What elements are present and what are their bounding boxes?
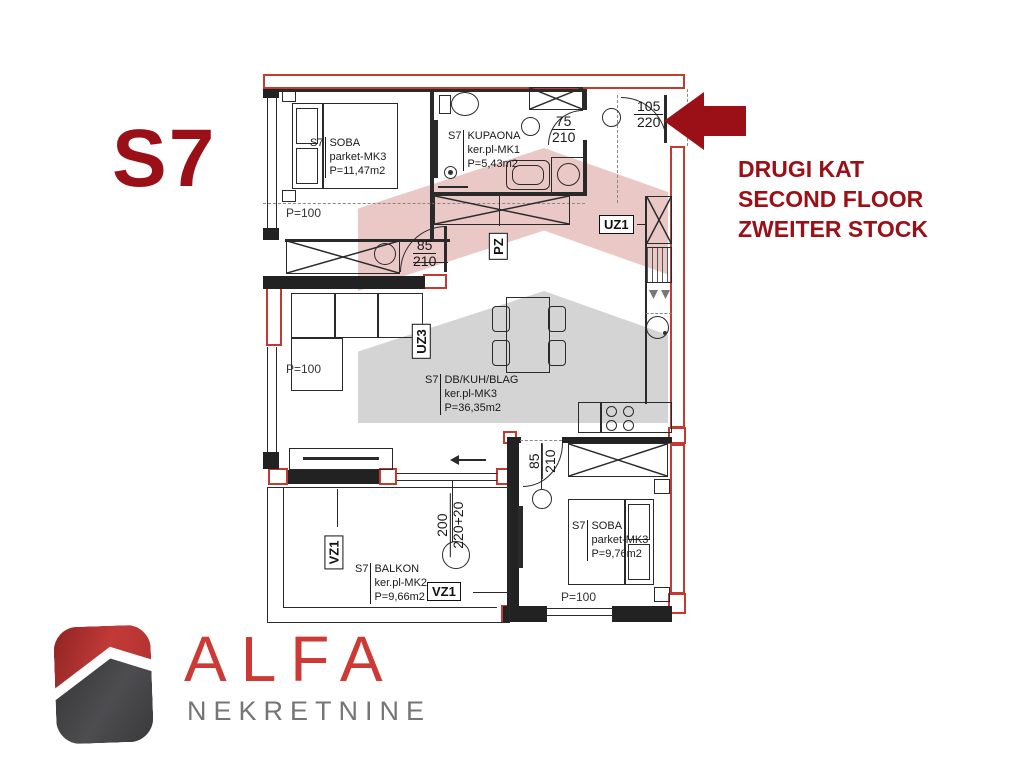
tv-living <box>303 457 379 460</box>
logo-title: ALFA <box>184 622 397 696</box>
burner <box>623 420 634 431</box>
nightstand <box>654 587 670 602</box>
wardrobe-bedroom1 <box>286 240 400 274</box>
room-prefix: S7 <box>448 130 463 171</box>
window-bedroom2 <box>547 608 613 616</box>
room-prefix: S7 <box>310 137 325 178</box>
bedroom1-door-leaf <box>444 226 447 272</box>
tv-bedroom2 <box>518 506 523 568</box>
parapet-bedroom1: P=100 <box>286 206 321 220</box>
dim-height: 210 <box>543 443 558 479</box>
room-label-bedroom2: S7 SOBAparket-MK3P=9,76m2 <box>572 520 648 561</box>
lamp-bedroom2 <box>532 489 552 509</box>
sofa-cushion-line <box>334 293 336 338</box>
room-floor: ker.pl-MK3 <box>444 388 518 402</box>
dim-height: 220 <box>634 115 663 130</box>
zone-label-uz1: UZ1 <box>599 215 634 234</box>
window-bedroom1 <box>267 97 277 232</box>
chair <box>492 340 510 366</box>
floorplan-canvas: S7 DRUGI KAT SECOND FLOOR ZWEITER STOCK <box>0 0 1034 768</box>
chair <box>492 306 510 332</box>
toilet-bowl <box>451 92 479 116</box>
window-living <box>267 347 277 452</box>
counter-divider <box>646 313 672 314</box>
dim-entrance-door: 105 220 <box>634 99 663 129</box>
unit-title: S7 <box>112 112 216 206</box>
room-label-bedroom1: S7 SOBAparket-MK3P=11,47m2 <box>310 137 386 178</box>
room-area: P=5,43m2 <box>467 158 520 172</box>
wall-stub <box>263 452 279 469</box>
counter-divider <box>600 402 602 433</box>
kitchen-sink-dot <box>663 331 667 335</box>
room-prefix: S7 <box>425 374 440 415</box>
closet-hall <box>434 195 570 225</box>
dim-width: 75 <box>552 114 575 130</box>
red-column <box>268 468 288 485</box>
room-prefix: S7 <box>572 520 587 561</box>
nightstand <box>282 190 296 202</box>
door-slide-arrow-head <box>450 455 459 465</box>
dim-height: 220+20 <box>451 493 466 557</box>
room-floor: ker.pl-MK2 <box>374 577 427 591</box>
leader-line <box>499 196 500 226</box>
bedroom2-door-opening <box>520 440 562 441</box>
room-floor: parket-MK3 <box>329 151 386 165</box>
glass-icon <box>661 290 670 299</box>
logo-subtitle: NEKRETNINE <box>187 696 431 727</box>
floor-info-line-de: ZWEITER STOCK <box>738 214 928 244</box>
room-floor: ker.pl-MK1 <box>467 144 520 158</box>
glass-icon <box>649 290 658 299</box>
kitchen-sink <box>646 316 669 339</box>
zone-label-vz1-wall: VZ1 <box>324 536 343 570</box>
zone-label-uz3: UZ3 <box>412 324 431 359</box>
balcony-inner-line-v <box>283 487 284 608</box>
room-area: P=9,66m2 <box>374 591 427 605</box>
room-name: SOBA <box>329 137 386 151</box>
leader-line <box>337 489 338 527</box>
dim-bedroom2-door: 85 210 <box>527 443 557 479</box>
entrance-arrow-icon <box>664 92 704 150</box>
dim-width: 85 <box>527 443 543 479</box>
window-balcony-door <box>397 473 497 481</box>
room-prefix: S7 <box>355 563 370 604</box>
room-label-balcony: S7 BALKONker.pl-MK2P=9,66m2 <box>355 563 427 604</box>
dim-bedroom1-door: 85 210 <box>413 238 436 268</box>
wardrobe-bathroom <box>529 87 583 110</box>
room-floor: parket-MK3 <box>591 534 648 548</box>
zone-label-vz1-floor: VZ1 <box>427 582 461 601</box>
room-name: KUPAONA <box>467 130 520 144</box>
door-slide-arrow-line <box>458 459 486 461</box>
floor-info-line-en: SECOND FLOOR <box>738 184 928 214</box>
burner <box>606 406 617 417</box>
red-column <box>379 468 397 485</box>
chair <box>548 340 566 366</box>
room-area: P=36,35m2 <box>444 402 518 416</box>
floor-info: DRUGI KAT SECOND FLOOR ZWEITER STOCK <box>738 154 928 244</box>
dim-width: 105 <box>634 99 663 115</box>
burner <box>606 420 617 431</box>
dim-width: 85 <box>413 238 436 254</box>
chair <box>548 306 566 332</box>
wall-bath-right-top <box>583 89 587 110</box>
glasses-icon <box>649 290 671 302</box>
wall-right-lower <box>670 444 685 594</box>
dim-height: 210 <box>552 130 575 145</box>
lamp-entry <box>602 108 621 127</box>
wall-right-upper <box>670 146 685 428</box>
dim-balcony-door: 200 220+20 <box>435 493 465 557</box>
wall-living-top <box>263 276 425 289</box>
zone-label-pz: PZ <box>489 233 508 260</box>
room-area: P=11,47m2 <box>329 165 386 179</box>
wall-bedroom2-bottom-b <box>612 606 672 622</box>
nightstand <box>282 90 296 102</box>
leader-line <box>637 224 647 225</box>
alfa-logo-icon <box>53 624 154 744</box>
room-area: P=9,76m2 <box>591 548 648 562</box>
parapet-living: P=100 <box>286 362 321 376</box>
toilet-tank <box>439 95 451 114</box>
lamp-bathroom <box>521 117 540 136</box>
wardrobe-bedroom2 <box>568 443 668 477</box>
room-name: DB/KUH/BLAG <box>444 374 518 388</box>
sofa-cushion-line <box>377 293 379 338</box>
towel-rail <box>438 186 468 188</box>
entrance-arrow-shaft <box>703 106 746 136</box>
burner <box>623 406 634 417</box>
dish-rack <box>646 247 672 283</box>
washing-machine-drum <box>557 163 580 186</box>
dining-table <box>506 297 550 373</box>
wall-living-bottom <box>288 470 379 484</box>
dim-width: 200 <box>435 493 451 557</box>
room-name: BALKON <box>374 563 427 577</box>
sofa-back <box>291 293 423 338</box>
fridge <box>646 196 672 244</box>
dim-bathroom-door: 75 210 <box>552 114 575 144</box>
parapet-bedroom2: P=100 <box>561 590 596 604</box>
dim-height: 210 <box>413 254 436 269</box>
floor-info-line-hr: DRUGI KAT <box>738 154 928 184</box>
tv-bedroom1 <box>433 120 438 178</box>
wall-bedroom2-top-a <box>507 437 521 443</box>
red-column <box>423 274 447 289</box>
leader-line <box>473 592 510 593</box>
room-label-bathroom: S7 KUPAONAker.pl-MK1P=5,43m2 <box>448 130 520 171</box>
balcony-inner-line-h <box>283 607 497 608</box>
room-name: SOBA <box>591 520 648 534</box>
wall-top-exterior <box>263 74 685 89</box>
nightstand <box>654 479 670 494</box>
room-label-living: S7 DB/KUH/BLAGker.pl-MK3P=36,35m2 <box>425 374 518 415</box>
